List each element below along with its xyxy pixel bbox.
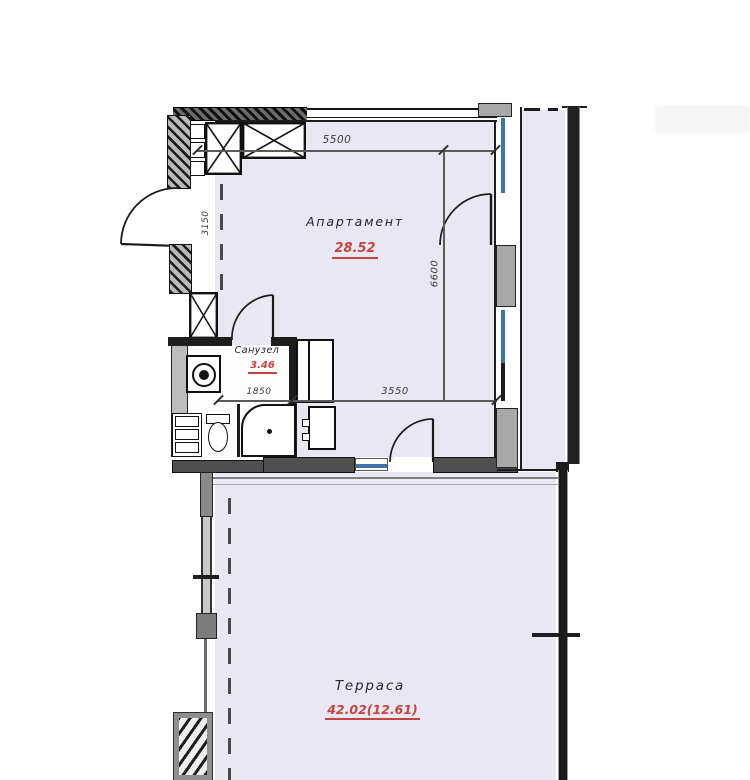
glazing-segment [501,310,505,365]
shaft-cell [175,429,199,440]
ventilation-shaft-xbox [189,292,218,339]
dim-bathroom-width: 1850 [238,387,280,397]
top-wall-hatched [173,107,307,121]
room-area-terrace: 42.02(12.61) [315,702,430,720]
shaft-cell [190,161,205,176]
bathroom-divider [237,404,240,457]
watermark [655,105,750,133]
room-area-apartment: 28.52 [305,241,405,259]
shower-cabin-icon [241,404,296,457]
balcony-door-arc-icon [430,186,500,252]
outer-wall-right-terrace [558,470,568,780]
room-label-apartment: Апартамент [300,214,410,229]
terrace-left-column [196,613,217,639]
shaft-cell [175,416,199,427]
window-lintel [478,103,512,117]
balcony-strip-floor [522,110,565,470]
radiator-panel [496,245,516,307]
room-label-terrace: Терраса [320,678,420,694]
shaft-cell [190,124,205,139]
dim-line-room-depth [443,150,445,400]
bottom-wall-seg [172,460,265,473]
top-wall-dash [524,108,540,111]
terrace-top-line2 [213,484,558,485]
area-value: 28.52 [332,241,377,259]
floor-plan: 5500 3150 6600 3550 1850 Апартамент 28.5… [0,0,750,780]
ventilation-shaft-xbox [205,122,242,175]
left-wall-upper [167,115,191,189]
toilet-icon [205,414,233,456]
glazing-segment [501,118,505,193]
terrace-top-line [213,477,558,479]
window-wall-outer-line [520,107,522,470]
top-wall [307,108,497,118]
area-value: 42.02(12.61) [325,702,420,720]
room-label-bathroom: Санузел [224,345,290,356]
terrace-floor [215,472,556,780]
shaft-cabinet [172,413,202,457]
bathroom-door-arc-icon [225,290,280,345]
radiator-panel [496,408,518,468]
dim-entry-side: 3150 [201,203,211,243]
sink-icon [308,406,336,450]
dim-room-width: 3550 [370,386,420,397]
dim-top-width: 5500 [307,134,367,146]
terrace-right-tick [532,633,580,637]
terrace-corner-column [174,713,212,780]
area-value: 3.46 [248,360,277,374]
terrace-left-wall-a [200,472,213,517]
shaft-cell [175,442,199,453]
top-wall-dash [548,108,558,111]
balcony-bottom-line [497,469,567,471]
counter [296,339,334,403]
terrace-overhang-dashed-line [228,498,231,780]
dim-line-top [197,150,495,152]
terrace-left-wall-b [201,517,212,615]
dim-line-mid [218,400,497,402]
left-wall-mid [169,244,192,294]
washing-machine-icon [186,355,221,393]
terrace-left-line [204,639,207,713]
entry-dimension-dashes [220,184,223,302]
dim-room-depth: 6600 [430,252,441,296]
terrace-left-tick [193,575,219,579]
terrace-door-arc-icon [380,412,440,468]
bottom-wall-seg [263,457,355,473]
outer-wall-right-upper [567,107,580,464]
room-area-bathroom: 3.46 [240,360,285,374]
ventilation-shaft-xbox [242,122,306,159]
